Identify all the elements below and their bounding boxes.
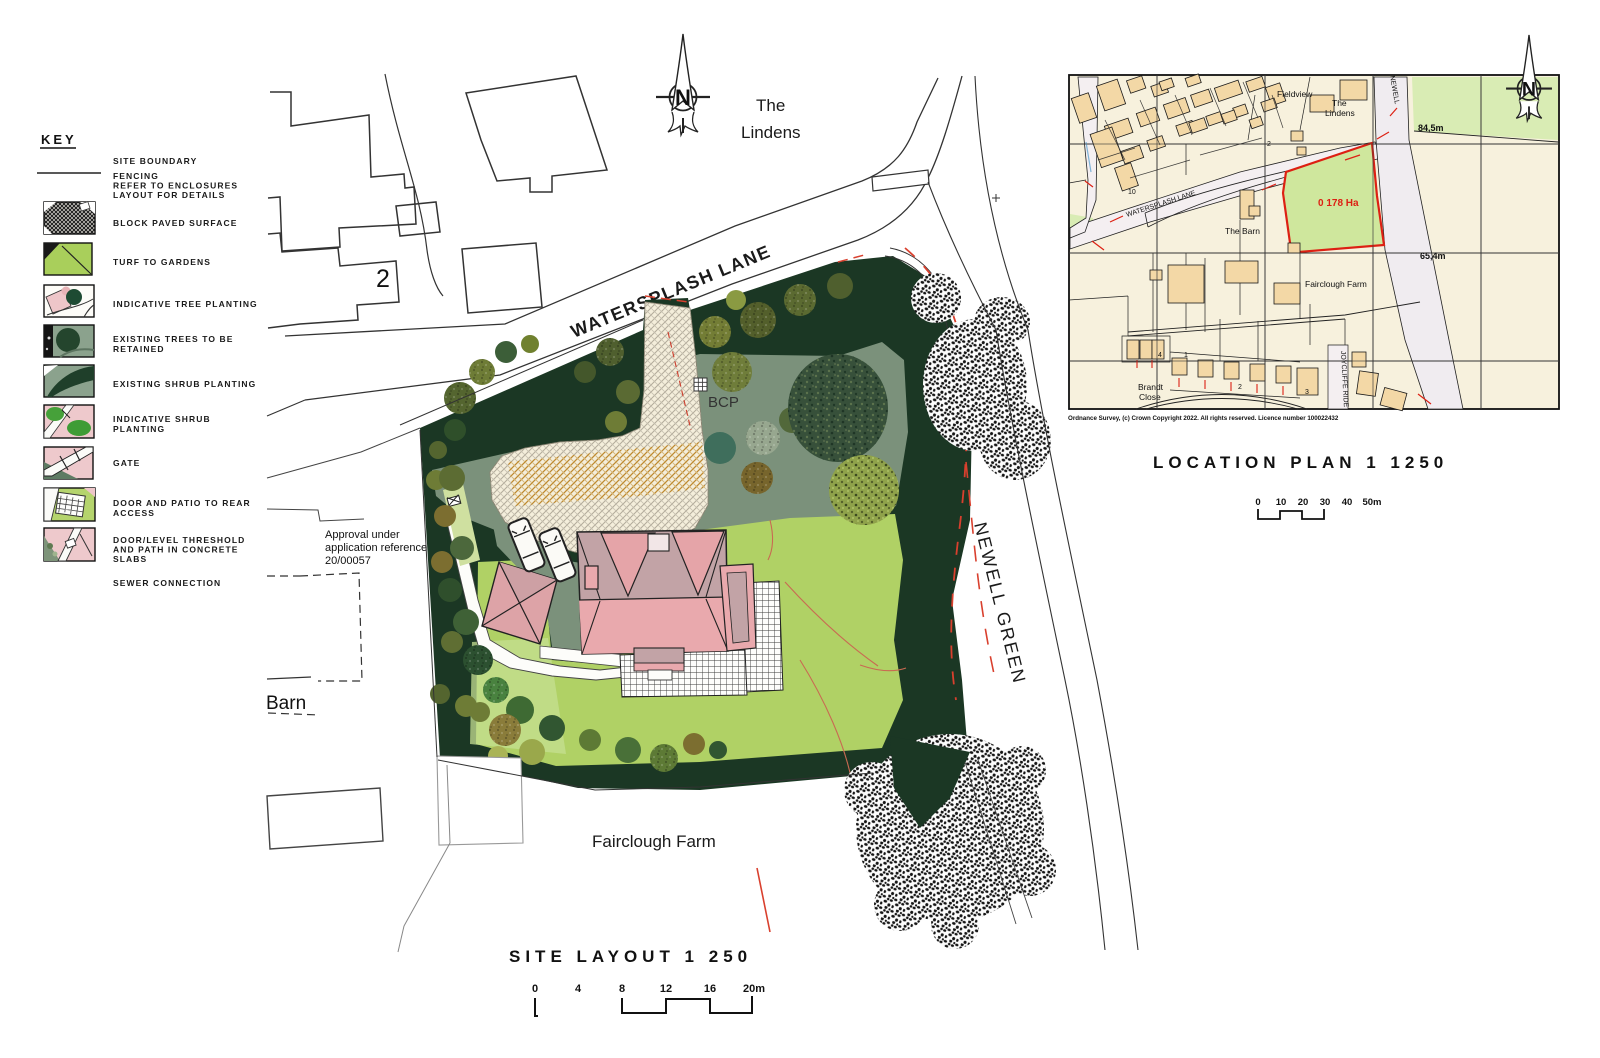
svg-text:Close: Close — [1139, 392, 1161, 402]
svg-text:SITE LAYOUT 1 250: SITE LAYOUT 1 250 — [509, 947, 752, 966]
svg-text:DOOR AND PATIO TO REAR: DOOR AND PATIO TO REAR — [113, 498, 251, 508]
svg-text:4: 4 — [575, 983, 582, 995]
svg-text:0 178 Ha: 0 178 Ha — [1318, 198, 1359, 209]
svg-text:0: 0 — [532, 983, 538, 995]
svg-text:BCP: BCP — [708, 394, 739, 411]
svg-text:16: 16 — [704, 983, 716, 995]
svg-text:INDICATIVE TREE PLANTING: INDICATIVE TREE PLANTING — [113, 299, 258, 309]
svg-text:2: 2 — [1238, 384, 1242, 391]
svg-text:SEWER CONNECTION: SEWER CONNECTION — [113, 578, 221, 588]
svg-text:65,4m: 65,4m — [1420, 251, 1446, 261]
svg-text:Fieldview: Fieldview — [1277, 89, 1313, 99]
svg-text:1: 1 — [1184, 352, 1188, 359]
svg-text:8: 8 — [619, 983, 625, 995]
svg-text:0: 0 — [1255, 497, 1260, 508]
svg-text:KEY: KEY — [41, 132, 77, 147]
svg-text:2: 2 — [1267, 141, 1271, 148]
svg-text:20/00057: 20/00057 — [325, 555, 371, 567]
svg-text:Fairclough Farm: Fairclough Farm — [592, 832, 716, 851]
svg-text:Lindens: Lindens — [741, 123, 801, 142]
svg-text:30: 30 — [1320, 497, 1331, 508]
svg-text:AND PATH IN CONCRETE: AND PATH IN CONCRETE — [113, 545, 239, 555]
svg-text:20m: 20m — [743, 983, 765, 995]
svg-text:SLABS: SLABS — [113, 554, 147, 564]
svg-text:EXISTING TREES TO BE: EXISTING TREES TO BE — [113, 334, 234, 344]
svg-text:LAYOUT FOR DETAILS: LAYOUT FOR DETAILS — [113, 190, 225, 200]
svg-text:10: 10 — [1128, 189, 1136, 196]
svg-text:FENCING: FENCING — [113, 171, 159, 181]
svg-text:RETAINED: RETAINED — [113, 344, 165, 354]
svg-text:application reference: application reference — [325, 542, 427, 554]
svg-text:Brandt: Brandt — [1138, 382, 1164, 392]
svg-text:N: N — [675, 85, 691, 110]
svg-text:The: The — [1332, 98, 1347, 108]
svg-text:12: 12 — [660, 983, 672, 995]
svg-text:N: N — [1522, 78, 1536, 100]
svg-text:PLANTING: PLANTING — [113, 424, 165, 434]
svg-text:The Barn: The Barn — [1225, 226, 1260, 236]
svg-text:40: 40 — [1342, 497, 1353, 508]
svg-text:BLOCK PAVED SURFACE: BLOCK PAVED SURFACE — [113, 218, 237, 228]
svg-text:Barn: Barn — [266, 693, 306, 714]
svg-text:LOCATION PLAN 1 1250: LOCATION PLAN 1 1250 — [1153, 453, 1448, 472]
svg-text:Fairclough Farm: Fairclough Farm — [1305, 279, 1367, 289]
svg-text:Ordnance Survey, (c) Crown Cop: Ordnance Survey, (c) Crown Copyright 202… — [1068, 415, 1339, 422]
svg-text:ACCESS: ACCESS — [113, 508, 155, 518]
svg-text:GATE: GATE — [113, 458, 140, 468]
svg-text:SITE BOUNDARY: SITE BOUNDARY — [113, 156, 197, 166]
svg-text:Approval under: Approval under — [325, 529, 400, 541]
svg-text:DOOR/LEVEL THRESHOLD: DOOR/LEVEL THRESHOLD — [113, 535, 245, 545]
svg-text:50m: 50m — [1362, 497, 1381, 508]
svg-text:20: 20 — [1298, 497, 1309, 508]
svg-text:3: 3 — [1305, 389, 1309, 396]
svg-text:Lindens: Lindens — [1325, 108, 1355, 118]
svg-text:10: 10 — [1276, 497, 1287, 508]
svg-text:The: The — [756, 96, 785, 115]
svg-text:2: 2 — [376, 265, 390, 293]
svg-text:EXISTING SHRUB PLANTING: EXISTING SHRUB PLANTING — [113, 379, 256, 389]
svg-text:REFER TO ENCLOSURES: REFER TO ENCLOSURES — [113, 181, 238, 191]
svg-text:84,5m: 84,5m — [1418, 123, 1444, 133]
svg-text:4: 4 — [1158, 352, 1162, 359]
svg-text:INDICATIVE SHRUB: INDICATIVE SHRUB — [113, 414, 211, 424]
svg-text:TURF TO GARDENS: TURF TO GARDENS — [113, 257, 211, 267]
